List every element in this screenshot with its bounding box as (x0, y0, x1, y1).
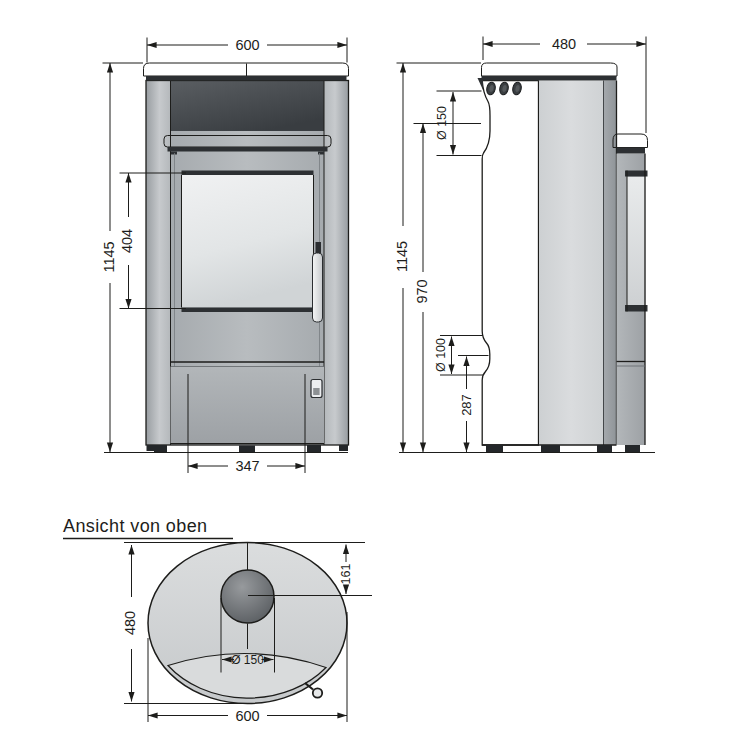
outlet-height-dim-label: 287 (459, 394, 474, 416)
front-door-width-dim-label: 347 (235, 458, 259, 474)
air-vent-holes (486, 81, 523, 95)
front-height-dim-label: 1145 (101, 241, 117, 272)
door-window-glass (182, 175, 314, 308)
door-handle (313, 253, 323, 322)
top-view-title: Ansicht von oben (63, 516, 208, 536)
top-plate-side (482, 63, 618, 76)
window-bottom-bar (182, 308, 314, 313)
side-height-dim-label: 1145 (394, 241, 410, 272)
door-top-plate-side (613, 134, 648, 148)
flue-offset-dim-label: 161 (339, 564, 353, 585)
top-plate-lip (478, 78, 484, 90)
flue-outlet-top (221, 570, 274, 623)
window-top-bar (182, 171, 314, 176)
front-view (104, 63, 349, 453)
top-plate-underside (146, 76, 347, 81)
top-view: Ansicht von oben (63, 516, 347, 704)
shelf-underside (168, 147, 328, 152)
flue-diameter-dim-label: Ø 150 (435, 106, 449, 140)
side-depth-dim-label: 480 (552, 36, 576, 52)
front-glass-height-dim-label: 404 (119, 229, 135, 253)
upper-dark-panel (171, 81, 325, 132)
door-plate-underside (617, 148, 646, 154)
stove-technical-drawing: 600 1145 404 347 (0, 0, 750, 750)
top-depth-dim-label: 480 (122, 611, 138, 635)
window-edge-side (627, 177, 646, 306)
stove-foot (239, 446, 255, 453)
top-flue-diameter-dim-label: Ø 150 (231, 653, 264, 667)
top-width-dim-label: 600 (235, 708, 259, 724)
door-handle-top (313, 688, 322, 697)
front-width-dim-label: 600 (235, 37, 259, 53)
back-panel (482, 81, 538, 446)
side-panel (539, 81, 604, 446)
outlet-diameter-dim-label: Ø 100 (434, 338, 448, 372)
flue-height-dim-label: 970 (414, 279, 430, 303)
ash-door-panel (171, 367, 325, 444)
